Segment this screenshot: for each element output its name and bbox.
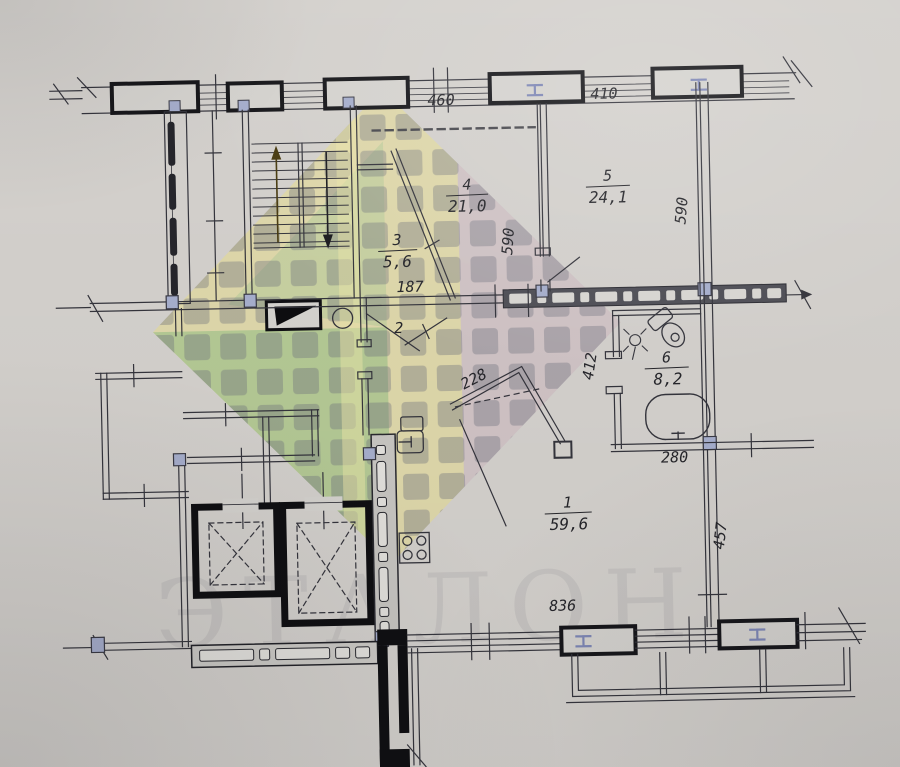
svg-text:3: 3 (391, 231, 401, 249)
svg-text:8,2: 8,2 (653, 369, 682, 389)
dimension-top-left: 460 (427, 91, 454, 110)
svg-text:5,6: 5,6 (383, 252, 412, 272)
room6-label: 6 8,2 (644, 348, 689, 389)
svg-text:1: 1 (563, 493, 572, 511)
floor-plan-photo: ЭТАЛОН (0, 0, 900, 767)
dimension-bath-width: 280 (661, 448, 688, 467)
watermark-logo: ЭТАЛОН (144, 83, 705, 671)
svg-text:21,0: 21,0 (448, 196, 487, 216)
dimension-bath-depth: 412 (579, 351, 601, 381)
room2-label: 2 (394, 319, 403, 337)
svg-text:6: 6 (662, 348, 671, 366)
room1-label: 1 59,6 (544, 493, 592, 534)
dimension-top-right: 410 (590, 84, 617, 103)
dimension-room5-depth: 590 (671, 196, 691, 225)
svg-text:59,6: 59,6 (550, 514, 589, 534)
svg-text:2: 2 (394, 319, 403, 337)
dimension-hall-width: 187 (396, 278, 423, 297)
left-balcony-column (164, 111, 190, 303)
room5-label: 5 24,1 (586, 166, 631, 207)
dimension-bottom-width: 836 (549, 596, 576, 615)
svg-text:24,1: 24,1 (589, 187, 628, 207)
floor-plan-canvas: ЭТАЛОН (0, 0, 900, 767)
wall-lamp-icon (623, 329, 648, 359)
dimension-room4-depth: 590 (498, 227, 518, 255)
svg-text:4: 4 (462, 176, 471, 194)
svg-text:5: 5 (603, 167, 612, 185)
toilet-icon (647, 306, 691, 352)
dimension-right-wall: 457 (710, 521, 731, 550)
bathtub-icon (645, 394, 710, 440)
